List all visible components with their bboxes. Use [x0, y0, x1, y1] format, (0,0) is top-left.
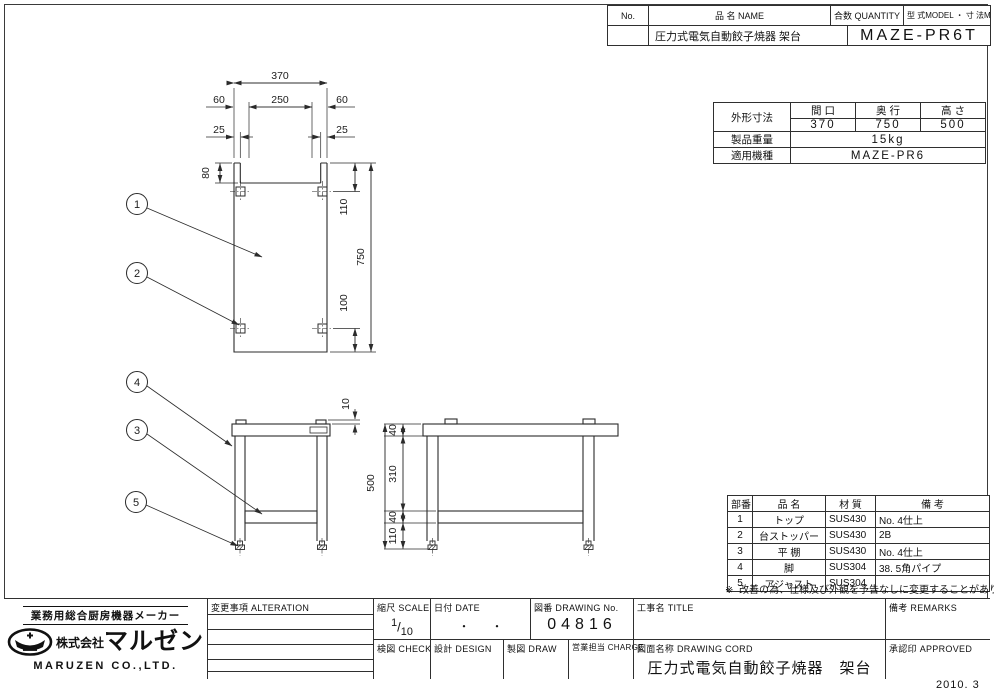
part-no: 2 [728, 528, 753, 544]
spec-depth-value: 750 [856, 119, 921, 132]
dim-offset-left: 60 [213, 94, 225, 106]
part-remarks: No. 4仕上 [876, 512, 990, 528]
company-block: 業務用総合厨房機器メーカー 株式会社 マルゼン MARUZEN CO.,LTD. [4, 599, 207, 679]
part-no: 1 [728, 512, 753, 528]
header-no-value [608, 26, 649, 46]
spec-weight-value: 15kg [791, 132, 986, 148]
remarks-label: 備考 REMARKS [886, 599, 990, 616]
spec-col-depth: 奥 行 [856, 103, 921, 119]
parts-table: 部番 品 名 材 質 備 考 1 トップ SUS430 No. 4仕上 2 台ス… [727, 495, 990, 592]
dim-bottom-to-stopper: 100 [338, 294, 350, 312]
header-table: No. 品 名 NAME 合数 QUANTITY 型 式MODEL ・ 寸 法M… [607, 5, 991, 46]
drawing-sheet: 370 250 60 60 25 25 80 110 750 100 [0, 0, 994, 692]
company-tagline: 業務用総合厨房機器メーカー [23, 606, 189, 625]
design-cell: 設計 DESIGN [430, 639, 503, 679]
dim-offset-right: 60 [336, 94, 348, 106]
drawing-number-cell: 図番 DRAWING No. 04816 [530, 599, 633, 639]
balloon-4-number: 4 [134, 377, 140, 389]
part-remarks: 2B [876, 528, 990, 544]
date-cell: 日付 DATE ・ ・ [430, 599, 530, 639]
parts-col-no: 部番 [728, 496, 753, 512]
part-material: SUS430 [826, 528, 876, 544]
alteration-row-line [208, 659, 373, 660]
scale-value: 1/10 [374, 617, 430, 638]
alteration-cell: 変更事項 ALTERATION [207, 599, 373, 679]
parts-col-remarks: 備 考 [876, 496, 990, 512]
maruzen-logo-icon [7, 627, 53, 657]
title-block: 業務用総合厨房機器メーカー 株式会社 マルゼン MARUZEN CO.,LTD.… [4, 598, 990, 679]
company-name-en: MARUZEN CO.,LTD. [4, 660, 207, 672]
company-brand: マルゼン [104, 630, 204, 654]
dim-tab-height: 10 [340, 398, 352, 410]
plan-dimension-labels: 370 250 60 60 25 25 80 110 750 100 [200, 70, 367, 312]
balloon-3-number: 3 [134, 425, 140, 437]
part-material: SUS430 [826, 544, 876, 560]
design-label: 設計 DESIGN [431, 640, 503, 657]
company-logo-row: 株式会社 マルゼン [4, 627, 207, 657]
part-no: 4 [728, 560, 753, 576]
dim-overall-height: 500 [365, 474, 377, 492]
company-prefix: 株式会社 [56, 634, 104, 651]
charge-label: 営業担当 CHARGE [569, 640, 633, 655]
project-title-label: 工事名 TITLE [634, 599, 885, 616]
front-view [232, 420, 330, 556]
scale-cell: 縮尺 SCALE 1/10 [373, 599, 430, 639]
remarks-cell: 備考 REMARKS [885, 599, 990, 639]
header-col-model: 型 式MODEL ・ 寸 法MEASUR [904, 6, 991, 26]
part-name: 平 棚 [753, 544, 826, 560]
alteration-row-line [208, 629, 373, 630]
alteration-row-line [208, 644, 373, 645]
side-view [423, 419, 618, 556]
balloon-2-number: 2 [134, 268, 140, 280]
plan-extension-lines [215, 88, 376, 352]
part-remarks: 38. 5角パイプ [876, 560, 990, 576]
draw-cell: 製図 DRAW [503, 639, 568, 679]
part-name: 脚 [753, 560, 826, 576]
dim-step: 80 [200, 167, 212, 179]
dim-inner: 250 [271, 94, 289, 106]
part-balloons [126, 194, 263, 547]
date-label: 日付 DATE [431, 599, 530, 616]
check-label: 検図 CHECK [374, 640, 430, 657]
plan-view [230, 163, 333, 352]
dim-top-to-stopper: 110 [338, 198, 350, 215]
dim-leg-clear: 310 [387, 465, 399, 483]
header-col-qty: 合数 QUANTITY [831, 6, 904, 26]
table-row: 2 台ストッパー SUS430 2B [728, 528, 990, 544]
drawing-cord-label: 図面名称 DRAWING CORD [634, 640, 885, 657]
note-text: 改善の為、仕様及び外観を予告なしに変更することがあります。 [739, 585, 994, 596]
charge-cell: 営業担当 CHARGE [568, 639, 633, 679]
check-cell: 検図 CHECK [373, 639, 430, 679]
spec-height-value: 500 [921, 119, 986, 132]
date-value: ・ ・ [431, 618, 530, 634]
header-col-no: No. [608, 6, 649, 26]
table-row: 3 平 棚 SUS430 No. 4仕上 [728, 544, 990, 560]
model-number: MAZE-PR6T [848, 26, 991, 46]
part-material: SUS304 [826, 560, 876, 576]
note-mark: ※ [725, 585, 733, 596]
table-row: 4 脚 SUS304 38. 5角パイプ [728, 560, 990, 576]
dim-top-thickness: 40 [387, 424, 399, 436]
part-name: 台ストッパー [753, 528, 826, 544]
part-name: トップ [753, 512, 826, 528]
part-remarks: No. 4仕上 [876, 544, 990, 560]
spec-col-width: 間 口 [791, 103, 856, 119]
dim-tab-left: 25 [213, 124, 225, 136]
dim-shelf-height: 110 [387, 527, 399, 544]
drawing-cord-value: 圧力式電気自動餃子焼器 架台 [634, 657, 885, 678]
dim-overall-depth: 750 [355, 248, 367, 266]
elevation-extension-lines [328, 420, 436, 549]
table-row: 1 トップ SUS430 No. 4仕上 [728, 512, 990, 528]
spec-model-value: MAZE-PR6 [791, 148, 986, 164]
spec-table: 外形寸法 間 口 奥 行 高 さ 370 750 500 製品重量 15kg 適… [713, 102, 986, 164]
issue-date: 2010. 3 [936, 679, 980, 691]
drawing-cord-cell: 図面名称 DRAWING CORD 圧力式電気自動餃子焼器 架台 [633, 639, 885, 679]
dim-shelf-thickness: 40 [387, 511, 399, 523]
balloon-1-number: 1 [134, 199, 140, 211]
approved-label: 承認印 APPROVED [886, 640, 990, 657]
product-name: 圧力式電気自動餃子焼器 架台 [649, 26, 848, 46]
alteration-row-line [208, 614, 373, 615]
project-title-cell: 工事名 TITLE [633, 599, 885, 639]
dim-tab-right: 25 [336, 124, 348, 136]
part-no: 3 [728, 544, 753, 560]
scale-denominator: 10 [401, 626, 413, 638]
balloon-5-number: 5 [133, 497, 139, 509]
spec-weight-label: 製品重量 [714, 132, 791, 148]
drawing-number-label: 図番 DRAWING No. [531, 599, 633, 616]
drawing-number-value: 04816 [531, 616, 633, 634]
approved-cell: 承認印 APPROVED [885, 639, 990, 679]
draw-label: 製図 DRAW [504, 640, 568, 657]
dim-overall-width: 370 [271, 70, 289, 82]
disclaimer-note: ※ 改善の為、仕様及び外観を予告なしに変更することがあります。 [725, 581, 991, 596]
parts-col-material: 材 質 [826, 496, 876, 512]
header-col-name: 品 名 NAME [649, 6, 831, 26]
scale-label: 縮尺 SCALE [374, 599, 430, 616]
spec-col-height: 高 さ [921, 103, 986, 119]
spec-width-value: 370 [791, 119, 856, 132]
spec-model-label: 適用機種 [714, 148, 791, 164]
alteration-row-line [208, 671, 373, 672]
parts-col-name: 品 名 [753, 496, 826, 512]
part-material: SUS430 [826, 512, 876, 528]
balloon-numbers: 1 2 4 3 5 [133, 199, 140, 509]
spec-dim-label: 外形寸法 [714, 103, 791, 132]
